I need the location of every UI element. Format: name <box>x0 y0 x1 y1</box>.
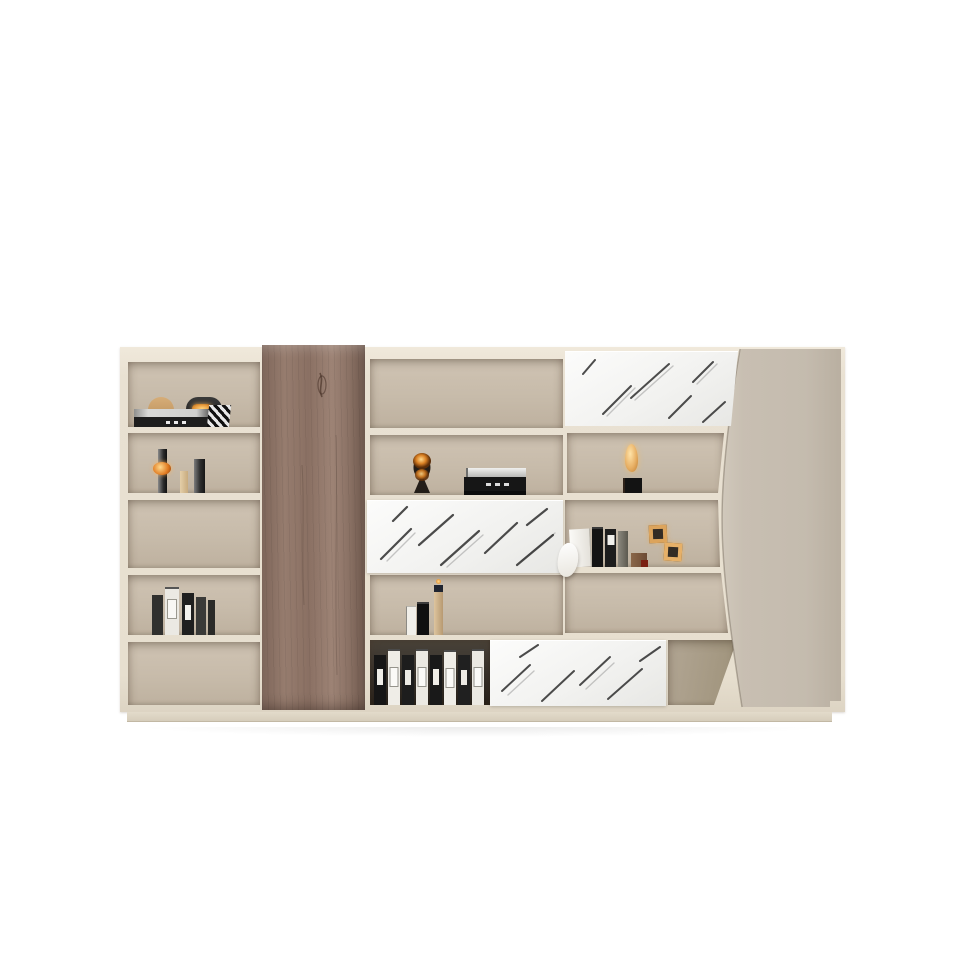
binder-label <box>461 670 467 685</box>
red-ornament <box>641 560 648 567</box>
binder-dark <box>605 529 616 567</box>
bookcase-cabinet <box>120 347 845 727</box>
abstract-amber-sculpture <box>406 449 438 495</box>
binder-label <box>433 669 439 685</box>
left-shelf-binders <box>128 575 260 635</box>
tall-bottle-ornament <box>434 585 443 635</box>
candle-short <box>180 471 188 493</box>
binder-white <box>472 649 484 705</box>
box-label-dots <box>486 483 491 486</box>
bottle-cap <box>434 585 443 592</box>
binder-dark <box>458 655 470 705</box>
stacked-book-dark <box>134 417 216 427</box>
center-shelf-small-books <box>370 575 563 635</box>
greige-curved-side-door <box>718 347 845 711</box>
center-shelf-binder-row <box>370 640 490 705</box>
binder-dark <box>374 655 386 705</box>
binder-dark <box>152 595 163 635</box>
binder-dark <box>208 600 215 635</box>
marble-door-top <box>565 351 738 427</box>
binder-grey <box>618 531 628 567</box>
marble-veins <box>367 501 563 573</box>
marble-door-bottom <box>490 640 666 706</box>
binder-dark <box>196 597 206 635</box>
ground-shadow <box>135 727 825 737</box>
left-shelf-top-decor <box>128 362 260 427</box>
center-shelf-empty-top <box>370 359 563 428</box>
curved-door-shading <box>722 349 841 707</box>
binder-label <box>607 535 614 545</box>
binder-white <box>416 649 428 705</box>
binder-dark <box>430 655 442 705</box>
binder-white <box>444 650 456 705</box>
black-cube-base <box>623 478 642 493</box>
left-shelf-empty-upper <box>128 500 260 568</box>
binder-dark <box>402 655 414 705</box>
bottle-glow <box>436 579 441 584</box>
book-label-dots <box>166 421 170 424</box>
wood-grain-marks <box>262 345 365 710</box>
marble-veins <box>490 641 666 706</box>
walnut-vertical-panel <box>262 345 365 710</box>
box-stack-base <box>464 491 526 495</box>
left-shelf-empty-lower <box>128 642 260 705</box>
binder-dark <box>592 527 603 567</box>
binder-dark <box>182 593 194 635</box>
right-shelf-empty-wide <box>565 573 728 633</box>
binder-white <box>388 649 400 705</box>
stacked-book-light <box>134 409 212 417</box>
binder-label <box>167 599 177 619</box>
binder-label <box>377 669 383 685</box>
product-photo-stage <box>0 0 961 961</box>
binder-label <box>474 667 483 687</box>
box-stack-top <box>466 468 526 477</box>
candle-mid <box>194 459 205 493</box>
candle-amber-orb <box>153 462 171 475</box>
amber-cube-frame <box>649 525 668 544</box>
marble-door-center <box>367 500 563 573</box>
marble-veins <box>565 352 738 427</box>
binder-white <box>165 587 179 635</box>
binder-label <box>405 670 411 685</box>
binder-label <box>418 667 427 687</box>
right-shelf-files-frames <box>565 500 720 567</box>
center-shelf-sculpture <box>370 435 563 495</box>
amber-leaf-ornament <box>625 444 638 472</box>
binder-label <box>185 605 191 620</box>
binder-label <box>390 667 399 687</box>
left-shelf-candles <box>128 433 260 493</box>
book-white <box>406 606 416 635</box>
amber-cube-frame <box>664 543 683 562</box>
binder-label <box>446 668 455 688</box>
book-black <box>417 602 429 635</box>
box-stack-bottom <box>464 477 526 491</box>
striped-bookend <box>207 405 231 427</box>
right-shelf-glow-ornament <box>567 433 724 493</box>
plinth-base <box>127 712 832 722</box>
